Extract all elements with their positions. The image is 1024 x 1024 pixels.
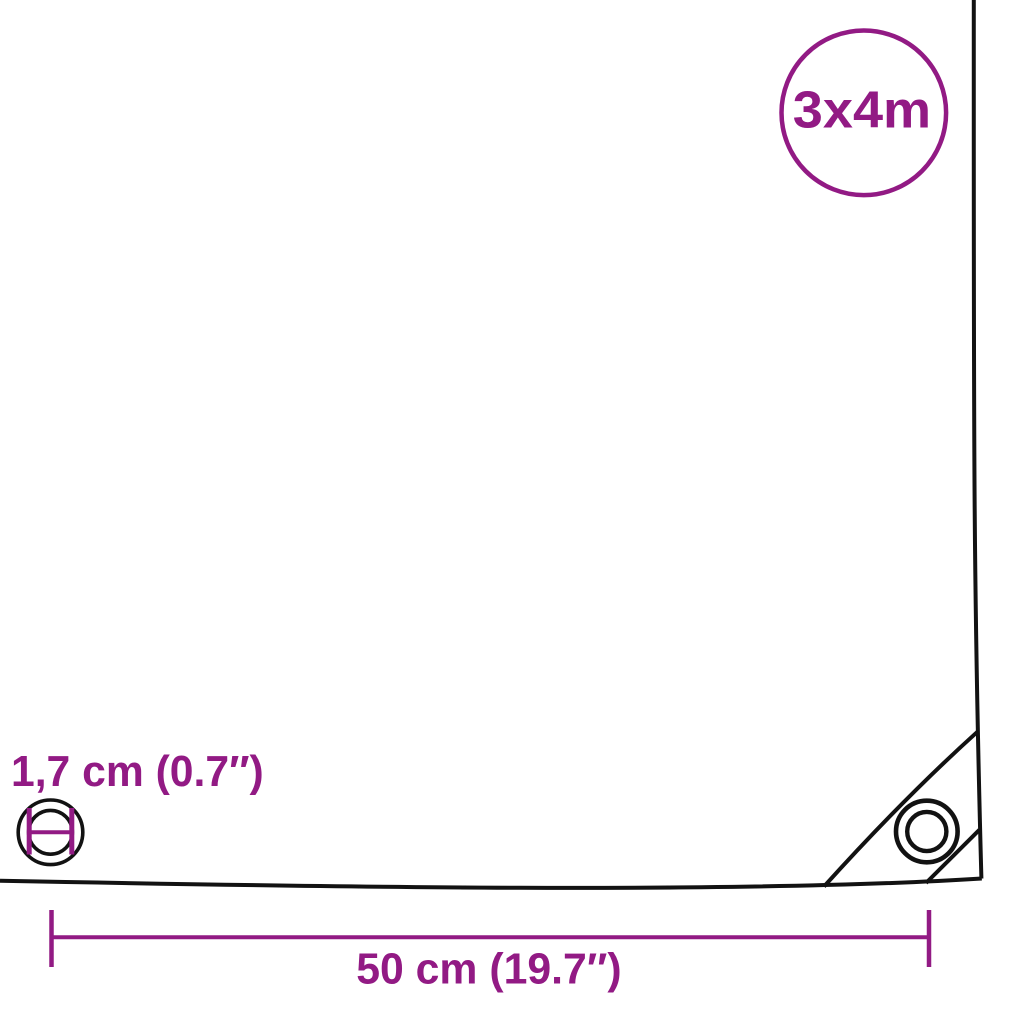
svg-text:3x4m: 3x4m: [793, 80, 931, 138]
svg-text:50 cm (19.7″): 50 cm (19.7″): [356, 944, 621, 993]
svg-text:1,7 cm (0.7″): 1,7 cm (0.7″): [11, 747, 264, 796]
